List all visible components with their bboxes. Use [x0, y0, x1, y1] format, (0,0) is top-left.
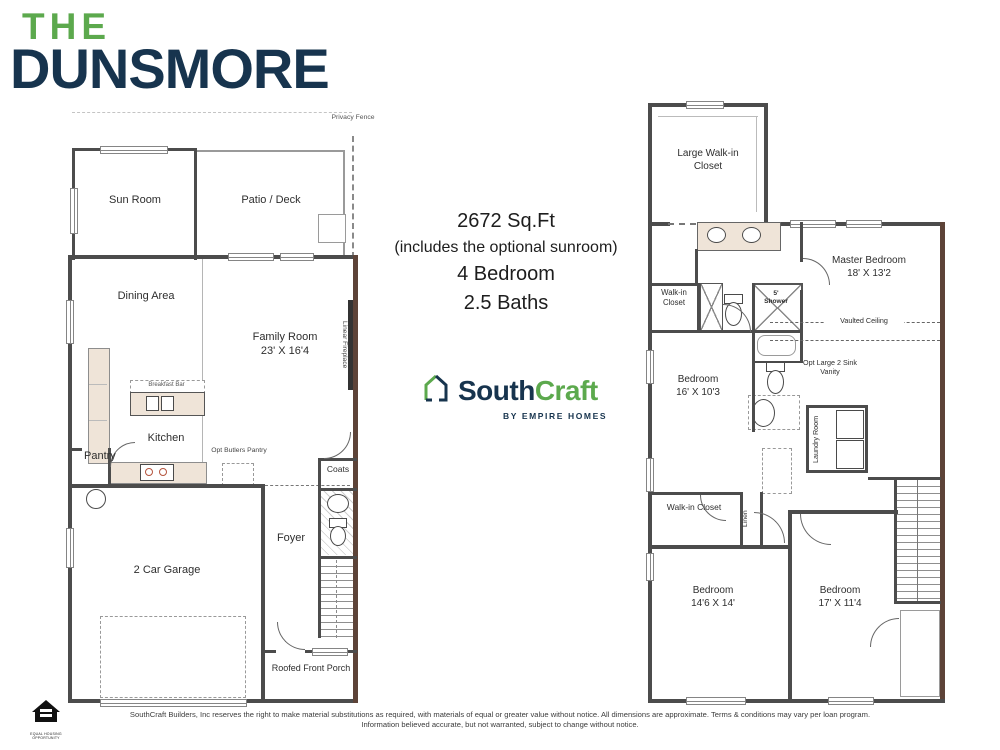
stairs — [897, 480, 940, 601]
closet-shelves — [700, 283, 723, 331]
sink-icon — [742, 227, 761, 243]
opening-dashed — [668, 223, 696, 225]
shelf-line — [756, 116, 757, 212]
door-arc — [723, 304, 751, 332]
closet-label-linen: Linen — [742, 498, 750, 540]
bed3-name: Bedroom — [693, 585, 734, 596]
wall — [800, 290, 803, 362]
disclaimer: SouthCraft Builders, Inc reserves the ri… — [0, 710, 1000, 731]
washer-icon — [836, 410, 864, 439]
disclaimer-line1: SouthCraft Builders, Inc reserves the ri… — [0, 710, 1000, 720]
shelf-line — [658, 116, 758, 117]
shower-size: 5' — [773, 290, 778, 297]
eho-text-2: OPPORTUNITY — [28, 737, 64, 741]
stairs-rail — [917, 480, 918, 601]
floorplan-sheet: THE DUNSMORE 2672 Sq.Ft (includes the op… — [0, 0, 1000, 750]
window — [790, 220, 836, 228]
closet-under-stairs — [900, 610, 940, 697]
wall — [648, 545, 791, 549]
master-dim: 18' X 13'2 — [847, 268, 891, 279]
room-label-wic2: Walk-in Closet — [652, 502, 736, 513]
shower-label: 5' Shower — [754, 290, 798, 306]
wall — [806, 405, 809, 472]
second-floor-plan: Large Walk-in Closet 5' Shower Walk-in C… — [0, 0, 1000, 750]
wall — [648, 492, 742, 495]
window — [646, 553, 654, 581]
disclaimer-line2: Information believed accurate, but not w… — [0, 720, 1000, 730]
vaulted-ceiling-label: Vaulted Ceiling — [824, 316, 904, 325]
dryer-icon — [836, 440, 864, 469]
wall — [752, 360, 755, 432]
room-label-laundry: Laundry Room — [812, 410, 820, 468]
wall — [648, 103, 652, 703]
wall — [806, 470, 868, 473]
vaulted-line — [770, 340, 940, 341]
door-arc — [754, 512, 785, 543]
room-label-wic: Walk-in Closet — [650, 288, 698, 307]
toilet-icon — [767, 370, 784, 394]
room-label-bed3: Bedroom 14'6 X 14' — [668, 585, 758, 610]
wall — [648, 222, 670, 226]
wall — [800, 222, 803, 262]
window — [646, 350, 654, 384]
wall — [788, 510, 792, 703]
sink-icon — [707, 227, 726, 243]
wall — [806, 405, 868, 408]
wall — [648, 283, 700, 286]
window — [828, 697, 874, 705]
bed3-dim: 14'6 X 14' — [691, 598, 735, 609]
window — [686, 101, 724, 109]
bed4-dim: 17' X 11'4 — [818, 598, 861, 609]
room-label-large-wic: Large Walk-in Closet — [664, 148, 752, 173]
door-arc — [870, 618, 899, 647]
wall — [695, 249, 698, 285]
bed2-dim: 16' X 10'3 — [676, 387, 720, 398]
sink-icon — [752, 399, 775, 427]
wall — [940, 222, 945, 703]
attic-access — [762, 448, 792, 494]
bed4-name: Bedroom — [820, 585, 861, 596]
room-label-bed2: Bedroom 16' X 10'3 — [658, 374, 738, 399]
opt-vanity-label: Opt Large 2 Sink Vanity — [798, 358, 862, 376]
room-label-master: Master Bedroom 18' X 13'2 — [826, 255, 912, 280]
room-label-bed4: Bedroom 17' X 11'4 — [795, 585, 885, 610]
door-arc — [800, 514, 831, 545]
bed2-name: Bedroom — [678, 374, 719, 385]
shower-word: Shower — [764, 298, 788, 305]
window — [646, 458, 654, 492]
bathtub-basin — [757, 335, 796, 356]
window — [846, 220, 882, 228]
wall — [894, 601, 941, 604]
master-name: Master Bedroom — [832, 255, 906, 266]
window — [686, 697, 746, 705]
wall — [764, 103, 768, 225]
wall — [865, 405, 868, 472]
